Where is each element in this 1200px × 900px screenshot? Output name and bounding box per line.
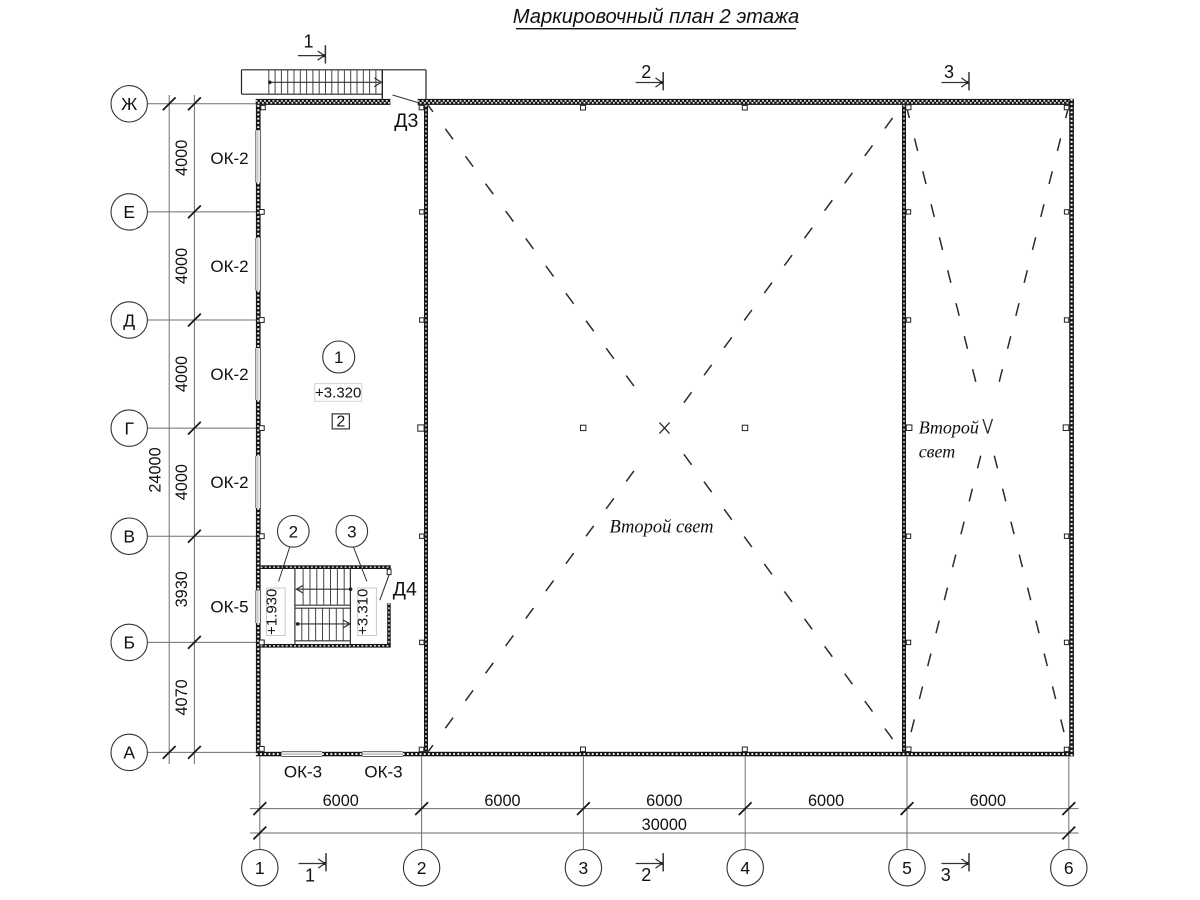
svg-text:3: 3 [944,62,954,82]
svg-text:ОК-2: ОК-2 [210,257,248,276]
svg-text:ОК-2: ОК-2 [210,365,248,384]
svg-text:ОК-2: ОК-2 [210,149,248,168]
svg-text:2: 2 [641,62,651,82]
svg-text:В: В [123,527,135,547]
svg-text:Б: Б [123,633,134,653]
svg-text:24000: 24000 [147,447,165,492]
svg-text:А: А [123,743,135,763]
svg-text:4000: 4000 [173,248,191,284]
svg-text:Д3: Д3 [394,110,418,132]
svg-text:2: 2 [336,413,345,430]
svg-text:3: 3 [347,522,356,541]
svg-text:6000: 6000 [646,792,682,810]
svg-text:ОК-3: ОК-3 [284,762,322,781]
svg-text:свет: свет [919,442,956,462]
svg-text:3: 3 [941,865,951,885]
svg-text:4: 4 [740,858,750,878]
svg-text:1: 1 [334,348,343,367]
svg-text:2: 2 [417,858,427,878]
svg-text:6: 6 [1064,858,1074,878]
svg-text:1: 1 [303,32,313,52]
svg-text:Второй свет: Второй свет [609,518,713,538]
svg-text:4070: 4070 [173,679,191,715]
svg-text:4000: 4000 [173,356,191,392]
svg-text:1: 1 [305,866,315,886]
svg-text:1: 1 [255,858,265,878]
svg-text:+3.320: +3.320 [315,384,361,401]
svg-text:Маркировочный план 2 этажа: Маркировочный план 2 этажа [513,6,800,28]
svg-text:+3.310: +3.310 [355,589,372,635]
svg-text:6000: 6000 [808,792,844,810]
svg-text:Д4: Д4 [393,579,417,601]
svg-text:Второй: Второй [919,418,979,438]
svg-text:+1.930: +1.930 [263,589,280,635]
svg-text:Д: Д [123,310,135,330]
svg-text:3: 3 [579,858,589,878]
svg-text:ОК-3: ОК-3 [364,762,402,781]
svg-text:5: 5 [902,858,912,878]
svg-text:6000: 6000 [484,792,520,810]
svg-text:2: 2 [641,865,651,885]
svg-text:6000: 6000 [323,792,359,810]
svg-text:2: 2 [289,522,298,541]
svg-text:ОК-2: ОК-2 [210,473,248,492]
svg-text:4000: 4000 [173,140,191,176]
svg-text:30000: 30000 [642,816,687,834]
svg-text:3930: 3930 [173,571,191,607]
svg-text:Г: Г [124,418,134,438]
svg-text:Е: Е [123,202,135,222]
svg-text:6000: 6000 [970,792,1006,810]
svg-text:ОК-5: ОК-5 [210,598,248,617]
svg-text:4000: 4000 [173,464,191,500]
svg-text:Ж: Ж [121,94,137,114]
